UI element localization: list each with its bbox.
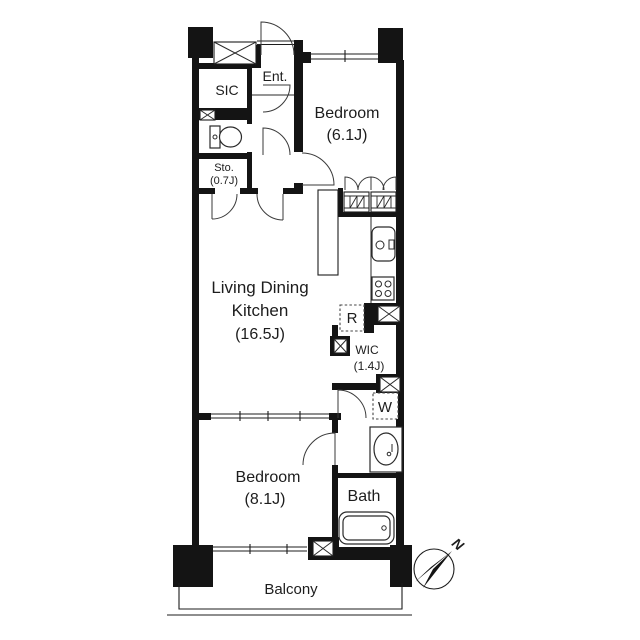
closet-door-arc	[371, 177, 384, 190]
bedroom-b-door-arc	[303, 433, 335, 465]
label-refrigerator: R	[347, 310, 358, 327]
bedroom-a-door-arc	[302, 153, 334, 185]
entrance-door-arc	[261, 22, 294, 55]
compass-icon: N	[414, 535, 468, 589]
room-label-wic: WIC	[355, 343, 379, 357]
floor-plan: N SIC Ent. Bedroom (6.1J) Sto. (0.7J) Li…	[0, 0, 640, 640]
north-arrow-icon	[423, 551, 452, 588]
room-label-bath: Bath	[348, 488, 381, 505]
pipe-shaft-icon	[313, 541, 333, 556]
room-size-wic: (1.4J)	[354, 359, 385, 373]
north-label: N	[449, 535, 468, 554]
room-label-bedroom-b: Bedroom	[236, 469, 301, 486]
room-size-storage: (0.7J)	[210, 175, 238, 187]
hall-door-arc	[263, 85, 290, 112]
room-label-sic: SIC	[215, 82, 238, 98]
pipe-shaft-icon	[214, 42, 256, 64]
room-label-bedroom-a: Bedroom	[315, 105, 380, 122]
toilet-icon	[210, 126, 242, 148]
room-size-ldk: (16.5J)	[235, 326, 285, 343]
pipe-shaft-icon	[334, 339, 347, 353]
kitchen-sink-icon	[372, 227, 395, 261]
room-label-storage: Sto.	[214, 162, 234, 174]
pipe-shaft-icon	[380, 377, 400, 392]
room-size-bedroom-a: (6.1J)	[327, 127, 368, 144]
ldk-door-arc	[257, 194, 283, 220]
closet-door-arc	[383, 177, 396, 190]
pipe-shaft-icon	[200, 110, 215, 120]
room-label-balcony: Balcony	[264, 581, 318, 598]
bathtub-icon	[339, 512, 394, 544]
closet-door-arc	[345, 177, 358, 190]
closet-hanger-icon	[344, 192, 396, 212]
room-label-entrance: Ent.	[263, 68, 288, 84]
washbasin-icon	[370, 427, 402, 472]
washroom-door-arc	[338, 390, 366, 418]
pillar	[378, 28, 403, 63]
closet-door-arc	[358, 177, 371, 190]
door-arcs	[212, 22, 396, 465]
pillar	[188, 27, 213, 58]
kitchen-counter	[318, 190, 338, 275]
north-arrow-icon	[415, 551, 452, 582]
room-size-bedroom-b: (8.1J)	[245, 491, 286, 508]
floor-plan-drawing: N SIC Ent. Bedroom (6.1J) Sto. (0.7J) Li…	[0, 0, 640, 640]
label-washer: W	[378, 399, 393, 416]
pipe-shaft-icon	[378, 306, 400, 322]
pillar	[173, 545, 213, 587]
room-label-ldk-line1: Living Dining	[211, 278, 308, 297]
toilet-door-arc	[263, 128, 290, 155]
room-label-ldk-line2: Kitchen	[232, 301, 289, 320]
storage-door-arc	[212, 194, 237, 219]
gas-stove-icon	[372, 277, 394, 300]
